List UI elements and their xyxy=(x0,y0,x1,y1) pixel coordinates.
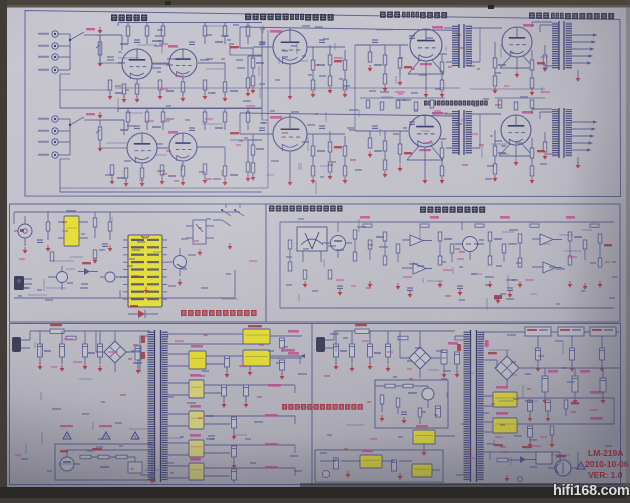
svg-text:hifi168.com: hifi168.com xyxy=(553,483,629,498)
